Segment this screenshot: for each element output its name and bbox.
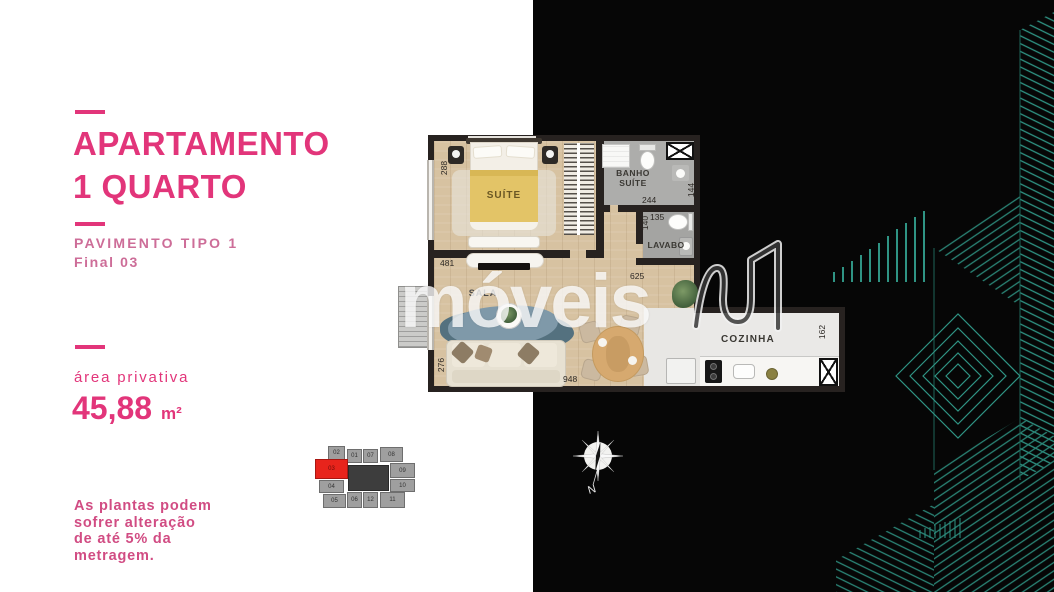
wall-banho-bottom-stub xyxy=(604,205,610,212)
watermark-brand-text: móveis xyxy=(400,258,650,345)
shower-tray xyxy=(602,144,630,168)
minimap-unit-11: 11 xyxy=(380,492,405,508)
kitchen-drain-icon xyxy=(766,368,778,380)
minimap-unit-04: 04 xyxy=(319,480,344,493)
banho-shaft-icon xyxy=(666,142,694,160)
nightstand-lamp-right-icon xyxy=(546,150,554,158)
area-accent-dash xyxy=(75,345,105,349)
banho-sink-basin-icon xyxy=(676,169,685,178)
kitchen-shaft-icon xyxy=(819,358,838,386)
title-accent-dash xyxy=(75,110,105,114)
private-area-label: área privativa xyxy=(74,369,189,386)
minimap-unit-06: 06 xyxy=(347,492,362,508)
area-number: 45,88 xyxy=(72,390,152,426)
lavabo-toilet-tank xyxy=(688,213,693,231)
dim-135: 135 xyxy=(650,212,664,222)
dim-276: 276 xyxy=(436,353,446,377)
sofa-back xyxy=(452,370,560,383)
page: APARTAMENTO 1 QUARTO PAVIMENTO TIPO 1 Fi… xyxy=(0,0,1054,592)
disclaimer-text: As plantas podem sofrer alteração de até… xyxy=(74,498,212,564)
kitchen-sink-icon xyxy=(733,364,755,379)
area-unit: m² xyxy=(161,404,182,423)
minimap-unit-12: 12 xyxy=(363,492,378,508)
bed-foot-fold xyxy=(470,222,538,230)
dim-244: 244 xyxy=(642,195,656,205)
disclaimer-line: As plantas podem xyxy=(74,498,212,515)
minimap-unit-10: 10 xyxy=(390,479,415,492)
dim-140: 140 xyxy=(640,211,650,235)
lavabo-label: LAVABO xyxy=(641,240,691,250)
stove-burner-2 xyxy=(710,373,717,380)
minimap-unit-09: 09 xyxy=(390,463,415,478)
minimap-unit-01: 01 xyxy=(347,449,362,463)
suite-dresser xyxy=(468,236,540,248)
suite-window xyxy=(427,160,434,240)
disclaimer-line: sofrer alteração xyxy=(74,515,212,532)
lavabo-toilet-icon xyxy=(668,214,688,230)
minimap-unit-07: 07 xyxy=(363,449,378,463)
private-area-value: 45,88 m² xyxy=(72,390,182,427)
banho-label: BANHO SUÍTE xyxy=(602,168,664,188)
compass-rose-icon xyxy=(570,430,626,492)
minimap-unit-03-highlighted: 03 xyxy=(315,459,348,479)
sofa-seat-2 xyxy=(488,343,521,367)
floor-plate-minimap: 02 01 07 08 03 04 09 10 05 06 12 11 xyxy=(315,444,417,510)
wardrobe-rack xyxy=(564,143,594,235)
subtitle-pavimento: PAVIMENTO TIPO 1 xyxy=(74,235,238,251)
dim-144: 144 xyxy=(686,178,696,202)
banho-label-line1: BANHO xyxy=(602,168,664,178)
bed-pillow-right xyxy=(506,145,536,159)
dining-plate-2 xyxy=(628,356,637,365)
wall-banho-bottom xyxy=(618,205,694,212)
nightstand-lamp-left-icon xyxy=(452,150,460,158)
disclaimer-line: metragem. xyxy=(74,548,212,565)
minimap-unit-08: 08 xyxy=(380,447,403,462)
subtitle-final: Final 03 xyxy=(74,254,139,270)
disclaimer-line: de até 5% da xyxy=(74,531,212,548)
page-title-line2: 1 QUARTO xyxy=(73,165,247,208)
bed-pillow-left xyxy=(473,145,503,159)
cozinha-label: COZINHA xyxy=(708,334,788,345)
minimap-unit-02: 02 xyxy=(328,446,345,460)
dim-162: 162 xyxy=(817,320,827,344)
banho-label-line2: SUÍTE xyxy=(602,178,664,188)
dim-948: 948 xyxy=(563,374,577,384)
subtitle-accent-dash xyxy=(75,222,105,226)
page-title-line1: APARTAMENTO xyxy=(73,122,330,165)
fridge xyxy=(666,358,696,384)
dim-288: 288 xyxy=(439,156,449,180)
stove-burner-1 xyxy=(710,363,717,370)
banho-toilet-tank xyxy=(639,144,656,151)
suite-label: SUÍTE xyxy=(470,190,538,201)
minimap-core xyxy=(348,465,389,491)
watermark-n-ribbon-logo-icon xyxy=(690,238,790,333)
minimap-unit-05: 05 xyxy=(323,494,346,508)
